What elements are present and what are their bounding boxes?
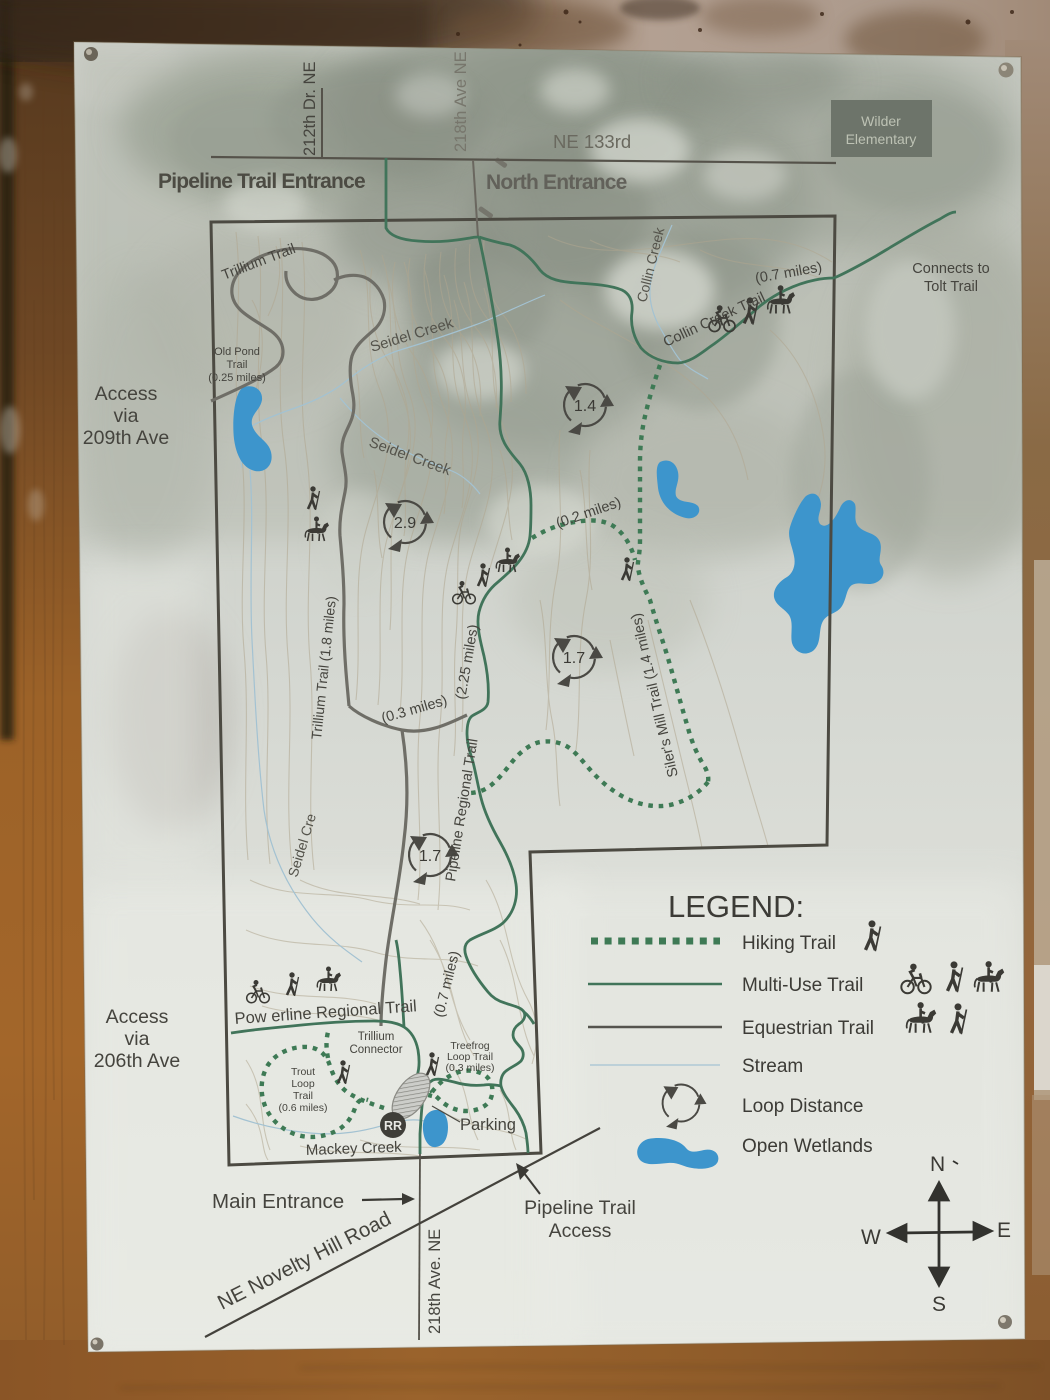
svg-text:Loop: Loop <box>291 1078 315 1090</box>
svg-text:(0.25 miles): (0.25 miles) <box>208 372 265 384</box>
svg-text:2.9: 2.9 <box>394 515 416 532</box>
svg-text:Multi-Use Trail: Multi-Use Trail <box>742 975 863 996</box>
svg-text:North Entrance: North Entrance <box>486 171 627 194</box>
svg-text:NE 133rd: NE 133rd <box>553 131 631 152</box>
svg-text:218th Ave NE: 218th Ave NE <box>452 51 470 152</box>
svg-text:1.4: 1.4 <box>574 398 596 415</box>
svg-text:Access: Access <box>549 1220 612 1242</box>
svg-text:1.7: 1.7 <box>563 650 585 667</box>
svg-text:via: via <box>125 1028 150 1050</box>
svg-text:1.7: 1.7 <box>419 848 441 865</box>
svg-text:Connector: Connector <box>349 1044 402 1056</box>
svg-text:LEGEND:: LEGEND: <box>668 889 804 924</box>
svg-text:N: N <box>930 1153 945 1176</box>
svg-text:212th Dr. NE: 212th Dr. NE <box>301 62 319 156</box>
svg-text:Access: Access <box>95 383 158 405</box>
svg-text:Wilder: Wilder <box>861 113 901 129</box>
svg-text:Stream: Stream <box>742 1056 803 1077</box>
svg-text:Elementary: Elementary <box>846 131 917 147</box>
svg-text:S: S <box>932 1293 946 1316</box>
svg-text:Parking: Parking <box>460 1116 516 1134</box>
svg-text:Trail: Trail <box>227 359 248 371</box>
svg-text:218th Ave. NE: 218th Ave. NE <box>426 1229 444 1334</box>
svg-text:Open Wetlands: Open Wetlands <box>742 1136 873 1157</box>
svg-text:Trillium: Trillium <box>358 1031 395 1043</box>
svg-text:209th Ave: 209th Ave <box>83 427 169 449</box>
svg-text:(0.3 miles): (0.3 miles) <box>445 1062 494 1074</box>
svg-text:via: via <box>114 405 139 427</box>
svg-text:Mackey Creek: Mackey Creek <box>306 1139 403 1159</box>
svg-text:E: E <box>997 1219 1011 1242</box>
svg-text:Pipeline Trail Entrance: Pipeline Trail Entrance <box>158 170 365 193</box>
svg-text:Trout: Trout <box>291 1066 315 1078</box>
svg-text:Equestrian Trail: Equestrian Trail <box>742 1018 874 1039</box>
svg-text:RR: RR <box>384 1119 402 1133</box>
svg-text:Connects to: Connects to <box>912 261 989 277</box>
svg-text:Access: Access <box>106 1006 169 1028</box>
svg-text:W: W <box>861 1226 881 1249</box>
svg-text:Main Entrance: Main Entrance <box>212 1190 344 1213</box>
svg-text:Hiking Trail: Hiking Trail <box>742 933 836 954</box>
svg-text:Trail: Trail <box>293 1090 313 1102</box>
svg-text:(0.6 miles): (0.6 miles) <box>278 1102 327 1114</box>
svg-text:Loop Distance: Loop Distance <box>742 1096 863 1117</box>
svg-text:Tolt Trail: Tolt Trail <box>924 279 978 295</box>
svg-text:Pipeline Trail: Pipeline Trail <box>524 1197 636 1219</box>
svg-text:206th Ave: 206th Ave <box>94 1050 180 1072</box>
svg-text:Old Pond: Old Pond <box>214 346 260 358</box>
